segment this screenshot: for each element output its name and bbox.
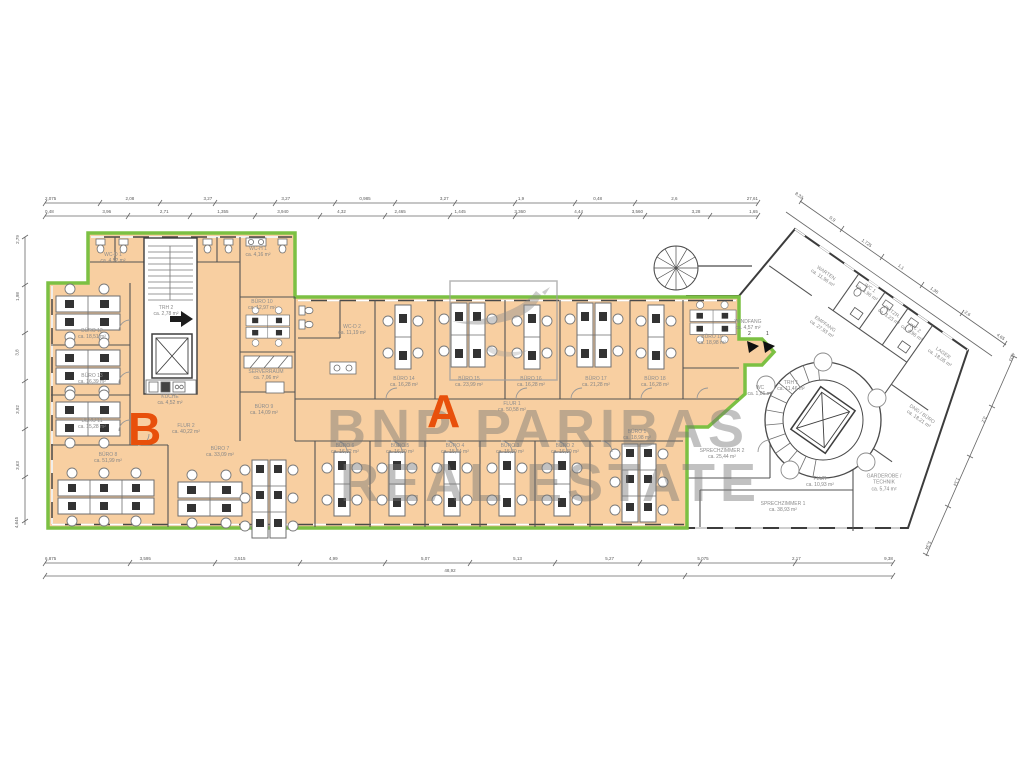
dim-chain-bottom: 6,8753,5953,5154,995,075,135,275,0752,17… (45, 556, 893, 561)
room-label-buero10: BÜRO 10ca. 12,97 m² (248, 299, 276, 312)
room-label-buero12: BÜRO 12ca. 18,51 m² (78, 328, 106, 341)
watermark-line-1: BNP PARIBAS (327, 398, 749, 460)
room-label-sprechzimmer1: SPRECHZIMMER 1ca. 38,93 m² (761, 501, 806, 514)
room-label-buero13: BÜRO 13ca. 16,39 m² (78, 373, 106, 386)
room-label-buero14: BÜRO 14ca. 16,28 m² (390, 376, 418, 389)
dim-total: 48,92 (300, 568, 600, 573)
room-label-buero17: BÜRO 17ca. 21,28 m² (582, 376, 610, 389)
watermark-line-2: REAL ESTATE (340, 452, 761, 514)
room-label-buero7: BÜRO 7ca. 33,09 m² (206, 446, 234, 459)
spiral-stair-top (654, 246, 752, 290)
floorplan-drawing (0, 0, 1024, 768)
entrance-marker-1: 1 (766, 331, 769, 337)
kitchen-strip (146, 380, 196, 394)
zone-b-label: B (128, 406, 161, 452)
room-label-windfang: WINDFANGca. 4,57 m² (735, 319, 762, 332)
room-label-garderobe: GARDEROBE / TECHNIKca. 5,74 m² (862, 474, 906, 493)
dim-chain-top-2: 0,483,962,711,3553,9404,322,4651,4453,36… (45, 209, 758, 214)
room-label-buero8: BÜRO 8ca. 51,99 m² (94, 452, 122, 465)
room-label-buero18: BÜRO 18ca. 16,28 m² (641, 376, 669, 389)
room-label-kueche: KÜCHEca. 4,52 m² (157, 394, 182, 407)
room-label-buero16: BÜRO 16ca. 16,28 m² (517, 376, 545, 389)
room-label-wc-entr: WCca. 1,86 m² (747, 385, 772, 398)
room-label-trh1: TRH 1ca. 11,46 m² (777, 380, 804, 393)
room-label-wc-d1: WC-D 1ca. 4,52 m² (100, 252, 125, 265)
dim-chain-left: 2,791,983,83,923,634,645 (12, 237, 22, 525)
floorplan-canvas: WC-D 1ca. 4,52 m² WC-H 1ca. 4,16 m² BÜRO… (0, 0, 1024, 768)
dim-chain-top-1: 2,0752,083,273,270,9853,271,90,482,627,6… (45, 196, 758, 201)
room-label-buero11: BÜRO 11ca. 15,28 m² (78, 418, 106, 431)
room-label-wcd2: WC-D 2ca. 11,19 m² (338, 324, 365, 337)
zone-a-label: A (427, 388, 460, 434)
room-label-flur3: FLURca. 10,93 m² (806, 476, 834, 489)
room-label-serverraum: SERVERRAUMca. 7,06 m² (248, 369, 283, 382)
room-label-buero9: BÜRO 9ca. 14,09 m² (250, 404, 278, 417)
entrance-marker-2: 2 (748, 331, 751, 337)
room-label-trh2: TRH 2ca. 2,78 m² (153, 305, 178, 318)
elevator-core (152, 334, 192, 378)
room-label-buero19: BÜRO 19ca. 18,98 m² (698, 334, 726, 347)
room-label-wc-h1: WC-H 1ca. 4,16 m² (245, 246, 270, 259)
room-label-flur2: FLUR 2ca. 40,22 m² (172, 423, 200, 436)
